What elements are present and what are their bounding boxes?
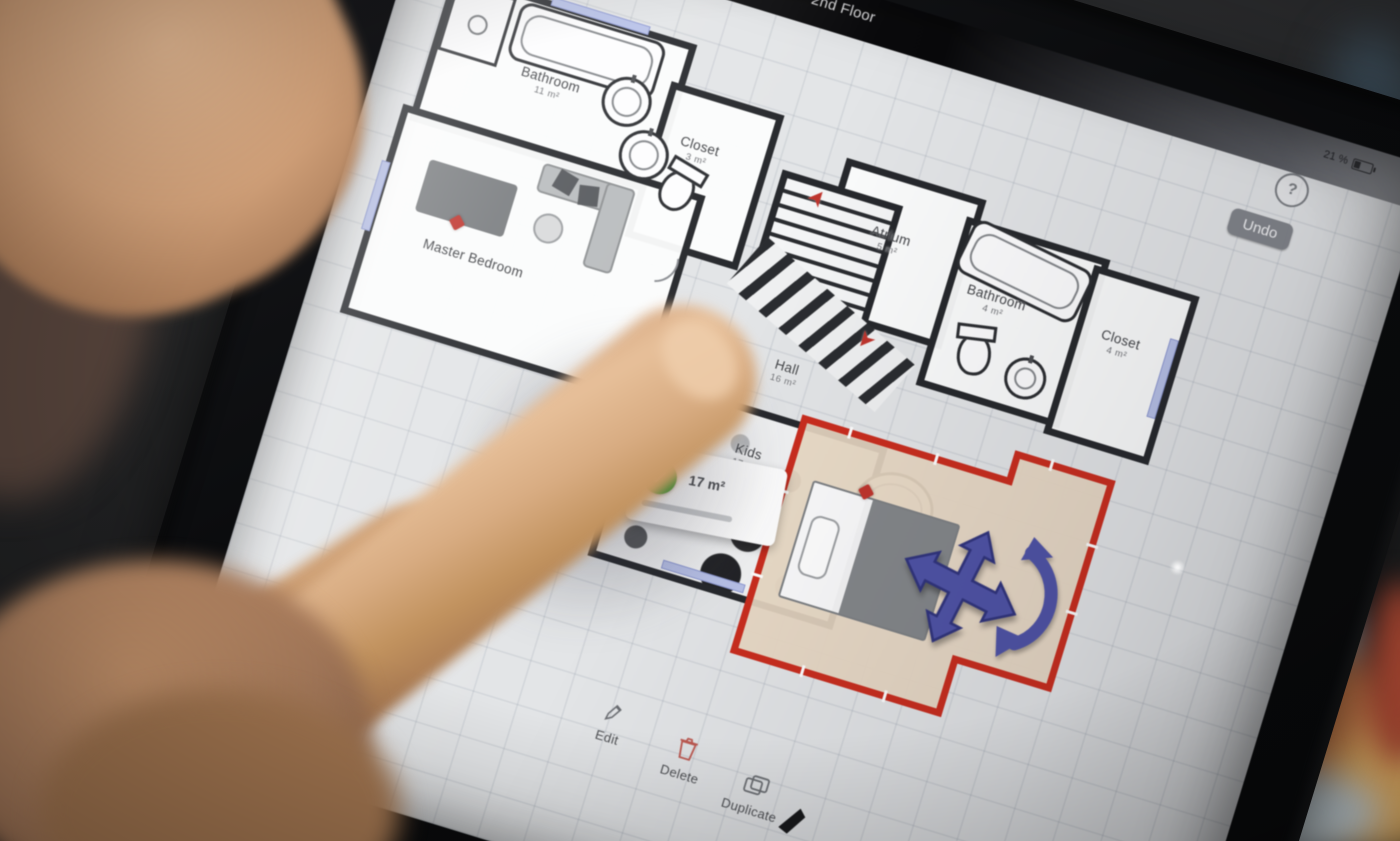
room-name: Atrium xyxy=(869,223,912,249)
door-pin[interactable] xyxy=(449,214,465,230)
duplicate-icon xyxy=(741,771,772,800)
sofa-cushion xyxy=(577,185,599,207)
room-name: Master Bedroom xyxy=(421,236,525,281)
crib[interactable] xyxy=(846,463,942,551)
room-label-closet-right: Closet 4 m² xyxy=(1096,327,1142,365)
duplicate-label: Duplicate xyxy=(713,793,784,828)
delete-label: Delete xyxy=(644,757,715,792)
room-label-atrium: Atrium 5 m² xyxy=(866,223,913,261)
room-name: Bathroom xyxy=(519,64,582,96)
sofa-cushion xyxy=(552,169,579,196)
room-label-hall: Hall 16 m² xyxy=(769,356,803,390)
room-label-bathroom-right: Bathroom 4 m² xyxy=(962,282,1028,326)
trash-icon xyxy=(673,734,701,763)
bezel-reflection xyxy=(1170,560,1185,575)
bathtub[interactable] xyxy=(952,217,1096,327)
window-marker xyxy=(1146,338,1179,419)
status-bar: 21 % xyxy=(1322,148,1374,174)
room-area: 11 m² xyxy=(516,79,577,107)
bed-blanket xyxy=(832,498,958,639)
room-area: 16 m² xyxy=(769,372,798,390)
shower[interactable] xyxy=(437,0,517,67)
room-area: 3 m² xyxy=(675,149,717,171)
window-marker xyxy=(361,160,391,231)
room-atrium[interactable] xyxy=(801,158,986,350)
side-table[interactable] xyxy=(529,210,566,247)
room-closet-top[interactable] xyxy=(624,81,784,270)
room-closet-right[interactable] xyxy=(1043,265,1200,465)
room-label-bathroom-left: Bathroom 11 m² xyxy=(516,64,582,108)
stairs-direction-arrow-icon: ➤ xyxy=(801,182,833,213)
page-title: 2nd Floor xyxy=(809,0,877,26)
move-room-handle[interactable] xyxy=(872,498,1050,676)
room-name: Hall xyxy=(773,357,801,378)
photo-scene: ➤ ➤ xyxy=(0,0,1400,841)
delete-button[interactable]: Delete xyxy=(644,727,724,791)
bathtub[interactable] xyxy=(505,0,668,102)
room-name: Closet xyxy=(1099,327,1142,353)
room-area xyxy=(421,251,520,281)
room-area: 4 m² xyxy=(1096,342,1138,364)
room-area: 4 m² xyxy=(962,297,1023,325)
battery-icon xyxy=(1351,158,1374,175)
stairs-direction-arrow-icon: ➤ xyxy=(850,325,882,356)
sofa-back[interactable] xyxy=(582,182,636,275)
room-bathroom-right[interactable] xyxy=(916,216,1111,428)
bed-pillow xyxy=(795,513,842,581)
bed-dark[interactable] xyxy=(415,159,519,238)
window-marker xyxy=(551,0,651,35)
title-bar: 2nd Floor 21 % xyxy=(424,0,1400,211)
duplicate-button[interactable]: Duplicate xyxy=(713,765,793,828)
edit-button[interactable]: Edit xyxy=(571,692,651,755)
rotate-room-handle[interactable] xyxy=(983,531,1088,676)
sink[interactable] xyxy=(595,71,657,133)
door-pin[interactable] xyxy=(858,484,874,500)
edit-label: Edit xyxy=(571,720,642,755)
toilet[interactable] xyxy=(955,332,994,378)
background-bokeh xyxy=(1368,580,1400,765)
room-bathroom-left[interactable] xyxy=(409,0,698,194)
help-button[interactable]: ? xyxy=(1271,169,1313,211)
room-area: 5 m² xyxy=(866,238,908,260)
sink[interactable] xyxy=(613,124,675,186)
room-label-closet-top: Closet 3 m² xyxy=(675,133,721,171)
room-name: Closet xyxy=(679,133,722,159)
sink[interactable] xyxy=(999,352,1051,404)
partial-toolbar-icon[interactable] xyxy=(775,801,812,838)
room-label-master-bedroom: Master Bedroom xyxy=(421,236,525,282)
pencil-icon xyxy=(601,701,629,725)
stairs-upper-flight[interactable] xyxy=(746,169,903,325)
door-arc xyxy=(621,224,689,292)
toilet[interactable] xyxy=(652,164,703,218)
sofa-seat[interactable] xyxy=(536,162,637,219)
room-name: Bathroom xyxy=(965,282,1028,314)
bed[interactable] xyxy=(778,480,961,642)
undo-button[interactable]: Undo xyxy=(1226,207,1295,251)
battery-percent: 21 % xyxy=(1322,148,1349,167)
background-bokeh xyxy=(1320,730,1400,841)
